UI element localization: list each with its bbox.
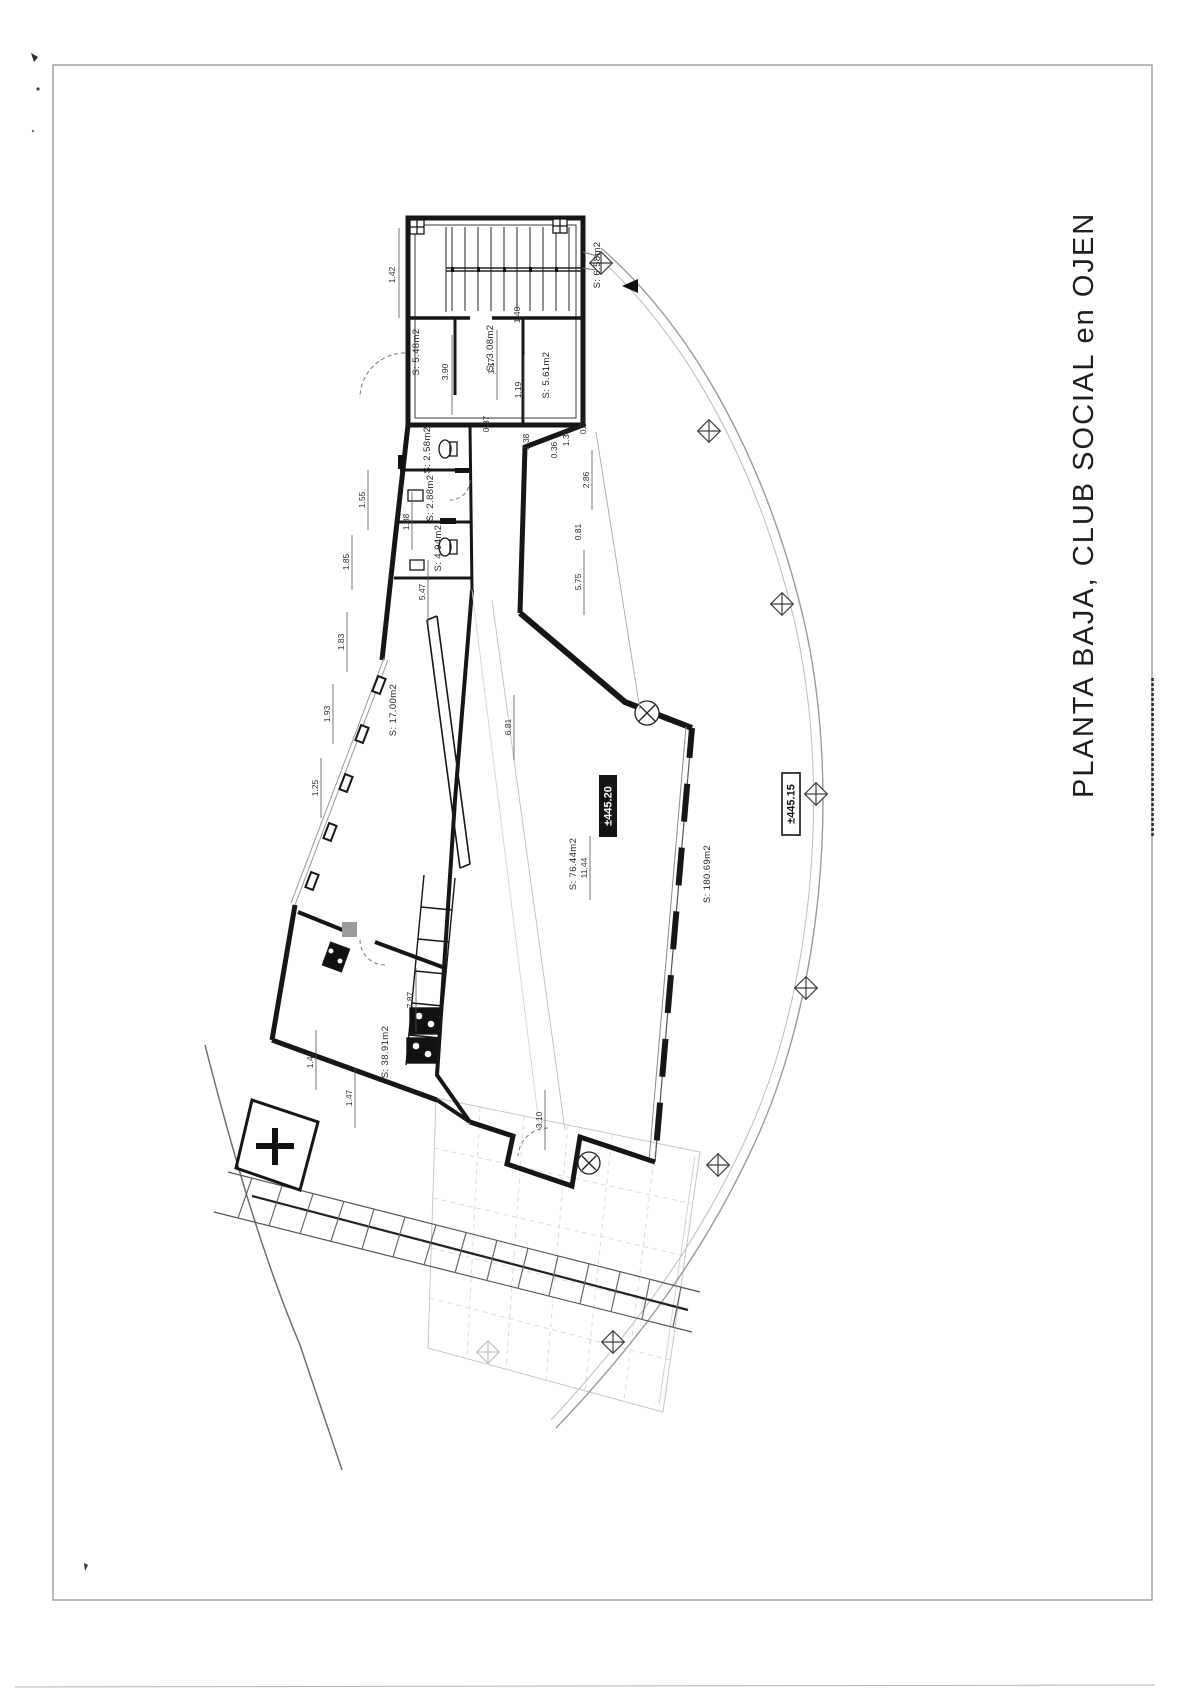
site-boundary-line xyxy=(205,1045,342,1470)
room-area-label: S: 17.00m2 xyxy=(388,684,399,737)
room-area-label: S: 4.94m2 xyxy=(433,525,444,572)
dimension-label: 0.81 xyxy=(573,523,583,540)
dimension-label: 5.47 xyxy=(417,583,427,600)
dimension-label: 1.40 xyxy=(512,306,522,323)
colonnade-arc xyxy=(551,248,823,1428)
room-area-label: S: 76.44m2 xyxy=(568,838,579,891)
scanned-drawing-sheet: 1.42 3.90 1.40 1.17 1.19 0.37 1.38 0.84 … xyxy=(0,0,1200,1697)
dimension-label: 1.83 xyxy=(336,633,346,650)
dimension-label: 1.85 xyxy=(341,553,351,570)
floor-plan-drawing: 1.42 3.90 1.40 1.17 1.19 0.37 1.38 0.84 … xyxy=(0,0,1200,1697)
scan-speck xyxy=(32,130,34,132)
building-walls xyxy=(236,218,692,1190)
exterior-stair xyxy=(214,1172,700,1332)
dimension-label: 2.86 xyxy=(581,471,591,488)
column-marker-diamond xyxy=(771,593,794,616)
porch-columns xyxy=(291,658,388,905)
column-marker-diamond xyxy=(795,977,818,1000)
dimension-label: 1.93 xyxy=(322,705,332,722)
dimension-label: 5.75 xyxy=(573,573,583,590)
scan-speck xyxy=(84,1563,88,1571)
level-value: ±445.20 xyxy=(603,786,615,826)
dimension-label: 7.87 xyxy=(405,991,415,1008)
column-marker-diamond xyxy=(602,1331,625,1354)
room-area-label: S: 38.91m2 xyxy=(380,1026,391,1079)
column-marker-diamond xyxy=(698,420,721,443)
drawing-title: PLANTA BAJA, CLUB SOCIAL en OJEN xyxy=(1068,212,1100,798)
dimension-label: 1.42 xyxy=(387,266,397,283)
bar-counter xyxy=(427,616,470,868)
room-area-label: S: 2.88m2 xyxy=(425,475,436,522)
dimension-label: 1.55 xyxy=(357,491,367,508)
column-marker-diamond xyxy=(707,1154,730,1177)
entry-direction-arrow xyxy=(622,279,638,293)
dimension-label: 1.34 xyxy=(561,429,571,446)
room-area-label: S: 3.08m2 xyxy=(485,325,496,372)
round-column-markers xyxy=(578,701,659,1174)
room-area-label: S: 5.48m2 xyxy=(411,329,422,376)
room-area-label: S: 5.61m2 xyxy=(541,352,552,399)
level-marker-outlined: ±445.15 xyxy=(782,773,800,835)
scan-speck xyxy=(31,53,38,62)
level-value: ±445.15 xyxy=(786,784,798,824)
paved-terrace-grid xyxy=(428,1098,700,1412)
scan-speck xyxy=(36,87,39,90)
dimension-label: 6.81 xyxy=(503,718,513,735)
room-area-label: S: 180.69m2 xyxy=(702,845,713,903)
dimension-label: 3.10 xyxy=(534,1111,544,1128)
dimension-label: 1.47 xyxy=(344,1089,354,1106)
room-area-label: S: 2.58m2 xyxy=(422,427,433,474)
room-area-labels: S: 5.48m2 S: 3.08m2 S: 6.58m2 S: 5.61m2 … xyxy=(380,242,713,1079)
dimension-label: 1.88 xyxy=(401,513,411,530)
dimension-label: 1.19 xyxy=(513,381,523,398)
level-marker-filled: ±445.20 xyxy=(599,775,617,837)
room-area-label: S: 6.58m2 xyxy=(592,242,603,289)
dimension-label: 11.44 xyxy=(579,857,589,878)
dimension-label: 0.37 xyxy=(481,415,491,432)
column-marker-diamond xyxy=(805,783,828,806)
stair-treads xyxy=(446,227,583,312)
annex-cross-fixture xyxy=(256,1128,294,1165)
dimension-label: 0.84 xyxy=(578,417,588,434)
dimension-label: 3.90 xyxy=(440,363,450,380)
dimension-label: 1.38 xyxy=(521,433,531,450)
dimension-label: 1.25 xyxy=(310,779,320,796)
dimension-label: 1.41 xyxy=(305,1051,315,1068)
dimension-label: 0.36 xyxy=(549,441,559,458)
column-marker-faint xyxy=(477,1341,500,1364)
